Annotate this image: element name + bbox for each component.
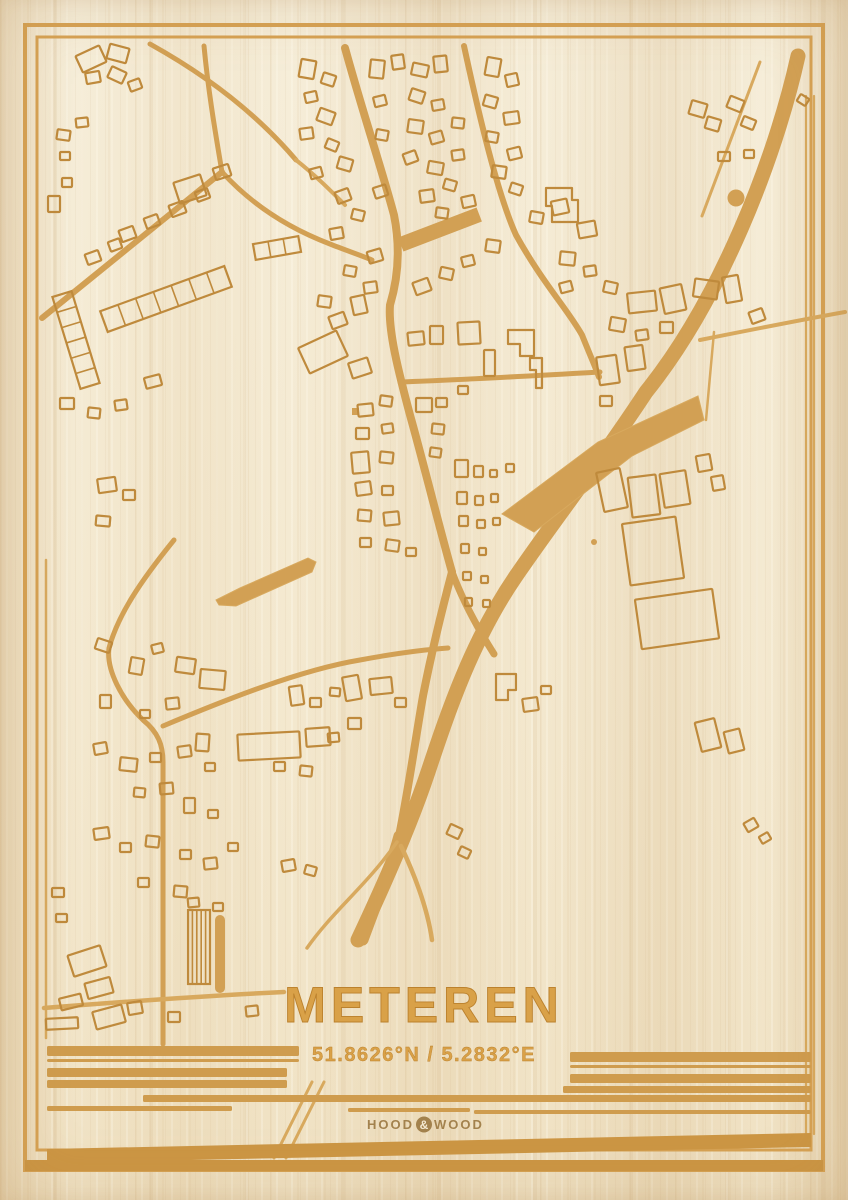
building-outline <box>635 329 648 341</box>
building-outline <box>485 239 501 253</box>
railway-band <box>47 1106 232 1111</box>
building-outline <box>168 1012 180 1022</box>
building-outline <box>432 423 445 434</box>
building-outline <box>106 44 129 64</box>
building-outline <box>383 511 399 525</box>
building-outline <box>695 718 722 752</box>
building-outline <box>184 798 195 813</box>
building-outline <box>416 398 432 412</box>
brand-logo: HOOD & WOOD <box>367 1117 484 1133</box>
brand-logo-ampersand: & <box>420 1118 429 1132</box>
railway-band-slanted <box>47 1133 811 1163</box>
building-outline <box>455 460 468 477</box>
building-outline <box>93 827 109 840</box>
building-outline <box>529 211 544 224</box>
building-outline <box>505 73 519 87</box>
building-outline <box>461 255 475 268</box>
building-outline <box>522 697 539 712</box>
building-outline <box>144 374 162 389</box>
building-outline <box>660 322 673 333</box>
building-outline <box>369 677 393 695</box>
railway-band <box>570 1074 811 1083</box>
railway-band <box>570 1052 811 1062</box>
building-outline <box>199 669 226 690</box>
building-outline <box>128 78 143 92</box>
building-outline <box>134 788 146 798</box>
building-outline <box>439 267 454 280</box>
road-area <box>216 558 316 606</box>
brand-logo-left: HOOD <box>367 1117 414 1132</box>
building-outline <box>435 207 448 219</box>
terraced-row-divider <box>189 279 197 300</box>
building-outline <box>203 857 217 869</box>
building-outline <box>343 265 357 277</box>
building-outline <box>624 345 645 371</box>
building-outline <box>145 835 159 847</box>
building-outline <box>430 326 443 344</box>
building-outline <box>76 117 89 127</box>
building-outline <box>351 209 365 222</box>
building-outline <box>457 321 480 344</box>
terraced-row-outline <box>253 236 301 260</box>
building-outline <box>375 129 389 141</box>
terraced-row <box>100 266 232 332</box>
building-outline <box>175 657 196 674</box>
building-outline <box>62 178 72 187</box>
building-outline <box>559 281 573 294</box>
road-path <box>222 172 372 260</box>
building-outline <box>358 509 372 521</box>
road-path <box>401 846 432 940</box>
railway-band-slanted <box>25 1160 823 1171</box>
building-outline <box>635 589 719 649</box>
building-outline <box>403 150 419 165</box>
building-outline <box>92 1004 126 1029</box>
building-outline <box>348 357 372 378</box>
building-outline <box>443 179 457 192</box>
building-outline <box>446 824 462 839</box>
building-outline <box>741 116 757 130</box>
terraced-row <box>188 910 210 984</box>
building-outline <box>67 945 106 976</box>
railway-band <box>563 1086 811 1093</box>
building-outline <box>385 539 399 552</box>
building-outline <box>205 763 215 771</box>
building-outline <box>150 753 161 762</box>
building-outline <box>406 548 416 556</box>
building-outline <box>321 72 337 86</box>
building-outline <box>726 96 744 113</box>
building-outline <box>461 195 476 208</box>
building-outline <box>382 486 393 495</box>
road-area <box>502 396 704 532</box>
terraced-row <box>253 236 301 260</box>
building-outline <box>373 95 387 108</box>
building-outline <box>711 475 725 491</box>
building-outline <box>609 317 626 332</box>
map-dot <box>728 190 745 207</box>
building-outline <box>412 278 431 296</box>
building-outline <box>237 731 300 760</box>
building-outline <box>85 250 102 265</box>
road-path <box>363 836 399 940</box>
railway-band <box>47 1068 287 1077</box>
building-outline <box>48 196 60 212</box>
building-outline <box>356 428 369 439</box>
railway-band <box>47 1059 299 1062</box>
building-outline <box>660 284 687 314</box>
building-outline <box>474 466 483 477</box>
building-outline <box>459 516 468 526</box>
terraced-row-divider <box>171 285 179 306</box>
building-outline <box>180 850 191 859</box>
road-path <box>345 48 452 572</box>
building-outline <box>60 152 70 160</box>
building-outline <box>367 248 384 263</box>
building-outline <box>688 100 707 118</box>
map-dot <box>591 539 597 545</box>
building-outline <box>108 238 123 252</box>
building-outline <box>85 71 101 84</box>
building-outline <box>174 885 188 897</box>
road-path <box>706 332 714 420</box>
railway-band <box>348 1108 470 1112</box>
building-outline <box>429 447 441 457</box>
terraced-row-divider <box>136 298 144 319</box>
building-outline <box>165 697 179 709</box>
building-outline <box>316 108 335 126</box>
building-outline <box>351 451 370 473</box>
building-outline <box>431 99 445 111</box>
building-outline <box>305 727 330 747</box>
map-canvas: METEREN 51.8626°N / 5.2832°E HOOD & WOOD <box>0 0 848 1200</box>
building-outline <box>329 227 344 240</box>
terraced-row-divider <box>207 273 215 294</box>
building-outline <box>360 538 371 547</box>
building-outline <box>177 745 191 758</box>
building-outline <box>705 116 722 131</box>
building-outline <box>509 182 524 195</box>
building-outline <box>274 762 285 771</box>
building-outline <box>348 718 361 729</box>
building-outline <box>461 544 469 553</box>
map-title: METEREN <box>284 977 563 1033</box>
building-outline <box>342 675 362 701</box>
building-outline <box>208 810 218 818</box>
building-outline <box>419 189 435 203</box>
building-outline <box>300 765 313 776</box>
terraced-row-divider <box>153 292 161 313</box>
building-outline <box>743 818 758 833</box>
building-outline <box>100 695 111 708</box>
building-outline <box>363 281 377 294</box>
building-outline <box>120 843 131 852</box>
building-outline <box>369 59 385 78</box>
terraced-row-divider <box>57 306 76 312</box>
building-outline <box>330 688 341 697</box>
road-path <box>163 648 448 726</box>
building-outline <box>381 423 393 433</box>
building-outline <box>337 156 354 171</box>
building-outline <box>603 281 618 294</box>
building-outline <box>457 492 467 504</box>
road-path <box>400 372 600 382</box>
building-outline <box>52 888 64 897</box>
building-outline <box>56 914 67 922</box>
wood-map-poster: METEREN 51.8626°N / 5.2832°E HOOD & WOOD <box>0 0 848 1200</box>
building-outline <box>355 481 372 496</box>
building-outline <box>379 395 392 407</box>
building-outline <box>483 600 490 607</box>
building-outline <box>317 295 331 308</box>
building-outline <box>138 878 149 887</box>
building-outline <box>436 398 447 407</box>
building-outline <box>246 1005 259 1016</box>
terraced-row-divider <box>283 239 286 255</box>
building-outline <box>195 734 209 752</box>
building-outline <box>481 576 488 583</box>
building-outline <box>188 898 200 908</box>
building-outline <box>289 685 305 706</box>
building-outline <box>433 55 448 72</box>
building-outline <box>559 251 575 265</box>
road-path <box>109 540 174 1002</box>
building-outline <box>503 111 520 125</box>
building-outline <box>622 517 684 586</box>
terraced-row-divider <box>118 305 126 326</box>
building-outline <box>88 407 101 418</box>
building-outline <box>452 117 465 128</box>
building-outline <box>429 130 445 144</box>
building-outline <box>748 308 765 324</box>
building-outline <box>75 45 106 72</box>
building-outline <box>451 149 464 161</box>
building-outline <box>458 386 468 394</box>
building-outline <box>123 490 135 500</box>
building-outline <box>328 312 347 330</box>
railway-band <box>143 1095 811 1102</box>
railway-band <box>47 1080 287 1088</box>
building-outline <box>508 330 534 356</box>
building-outline <box>93 742 108 755</box>
terraced-row-divider <box>76 368 95 374</box>
road-path <box>204 46 222 172</box>
building-outline <box>391 54 405 70</box>
building-outline <box>379 451 393 463</box>
building-outline <box>213 903 223 911</box>
building-outline <box>577 221 597 239</box>
building-outline <box>427 161 444 175</box>
brand-logo-right: WOOD <box>434 1117 484 1132</box>
building-outline <box>129 657 145 675</box>
road-path <box>150 44 296 160</box>
building-outline <box>395 698 406 707</box>
building-outline <box>407 331 424 346</box>
building-outline <box>491 494 498 502</box>
railway-band <box>47 1046 299 1056</box>
building-outline <box>496 674 516 700</box>
building-outline <box>744 150 754 158</box>
railway-band <box>474 1110 811 1114</box>
building-outline <box>463 572 471 580</box>
building-outline <box>357 403 373 417</box>
building-outline <box>477 520 485 528</box>
building-outline <box>600 396 612 406</box>
building-outline <box>46 1017 79 1030</box>
building-outline <box>479 548 486 555</box>
building-outline <box>97 477 117 493</box>
building-outline <box>696 454 713 472</box>
terraced-row-divider <box>66 337 85 343</box>
building-outline <box>627 291 657 314</box>
building-outline <box>485 57 502 77</box>
map-coordinates: 51.8626°N / 5.2832°E <box>312 1044 536 1066</box>
building-outline <box>475 496 483 505</box>
building-outline <box>325 138 340 152</box>
building-outline <box>797 94 810 106</box>
building-outline <box>299 127 313 140</box>
building-outline <box>759 832 772 844</box>
building-outline <box>458 846 472 859</box>
building-outline <box>299 59 317 79</box>
building-outline <box>107 66 127 84</box>
building-outline <box>84 977 113 999</box>
building-outline <box>151 643 164 654</box>
building-outline <box>350 295 367 316</box>
building-outline <box>546 188 578 222</box>
building-outline <box>60 398 74 409</box>
building-outline <box>628 474 661 517</box>
building-outline <box>56 129 70 141</box>
building-outline <box>408 88 425 104</box>
building-outline <box>583 265 596 277</box>
building-outline <box>506 464 514 472</box>
terraced-row-divider <box>268 241 271 257</box>
building-outline <box>228 843 238 851</box>
building-outline <box>310 698 321 707</box>
terraced-row-outline <box>100 266 232 332</box>
building-outline <box>96 515 111 526</box>
railway-band <box>570 1065 811 1068</box>
building-outline <box>660 470 691 508</box>
building-outline <box>281 859 296 872</box>
building-outline <box>304 865 317 877</box>
building-outline <box>119 757 137 772</box>
building-outline <box>551 198 570 215</box>
building-outline <box>127 1001 143 1015</box>
building-outline <box>304 91 318 103</box>
building-outline <box>724 728 745 753</box>
terraced-row-divider <box>71 352 90 358</box>
building-outline <box>484 350 495 376</box>
terraced-row-divider <box>62 322 81 328</box>
terraced-row-outline <box>188 910 210 984</box>
building-outline <box>483 94 499 108</box>
building-outline <box>490 470 497 477</box>
building-outline <box>407 119 424 134</box>
building-outline <box>541 686 551 694</box>
building-outline <box>411 62 429 77</box>
building-outline <box>493 518 500 525</box>
building-outline <box>298 330 348 373</box>
engraved-block <box>398 207 482 251</box>
buildings-layer <box>46 44 810 1030</box>
building-outline <box>114 399 127 411</box>
building-outline <box>507 147 522 161</box>
